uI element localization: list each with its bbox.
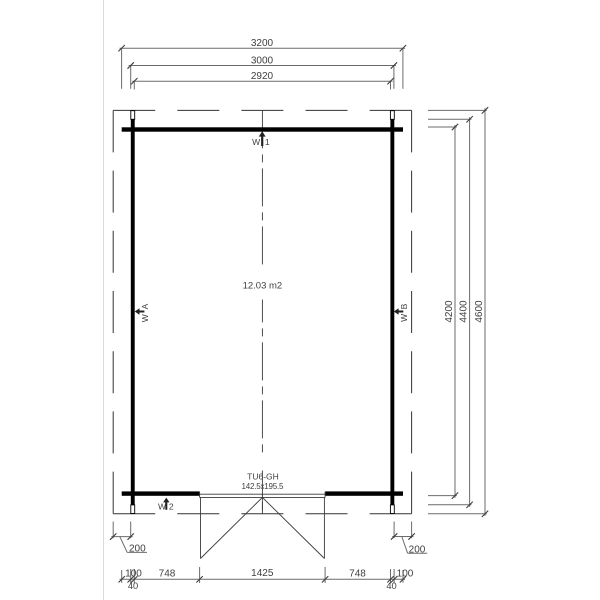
svg-text:748: 748	[349, 569, 366, 580]
svg-text:40: 40	[128, 581, 138, 591]
svg-text:W: W	[252, 137, 260, 147]
svg-text:2920: 2920	[251, 71, 274, 82]
svg-text:200: 200	[129, 544, 146, 555]
svg-text:142.5x195.5: 142.5x195.5	[241, 482, 284, 491]
svg-text:W: W	[158, 501, 166, 511]
svg-text:W: W	[140, 314, 150, 322]
svg-text:1: 1	[265, 137, 270, 147]
svg-text:3200: 3200	[251, 38, 274, 49]
svg-text:4200: 4200	[444, 300, 455, 323]
svg-text:4600: 4600	[474, 300, 485, 323]
svg-text:W: W	[399, 314, 409, 322]
svg-text:3000: 3000	[251, 56, 274, 67]
svg-text:200: 200	[409, 544, 426, 555]
svg-text:100: 100	[125, 569, 142, 580]
svg-text:2: 2	[169, 501, 174, 511]
svg-text:748: 748	[159, 569, 176, 580]
svg-text:4400: 4400	[459, 300, 470, 323]
svg-text:A: A	[140, 303, 150, 309]
svg-text:1425: 1425	[251, 568, 274, 579]
svg-text:B: B	[399, 303, 409, 309]
svg-text:12.03 m2: 12.03 m2	[243, 280, 283, 291]
svg-text:40: 40	[386, 581, 396, 591]
svg-text:TU6-GH: TU6-GH	[247, 471, 279, 481]
svg-text:100: 100	[397, 569, 414, 580]
